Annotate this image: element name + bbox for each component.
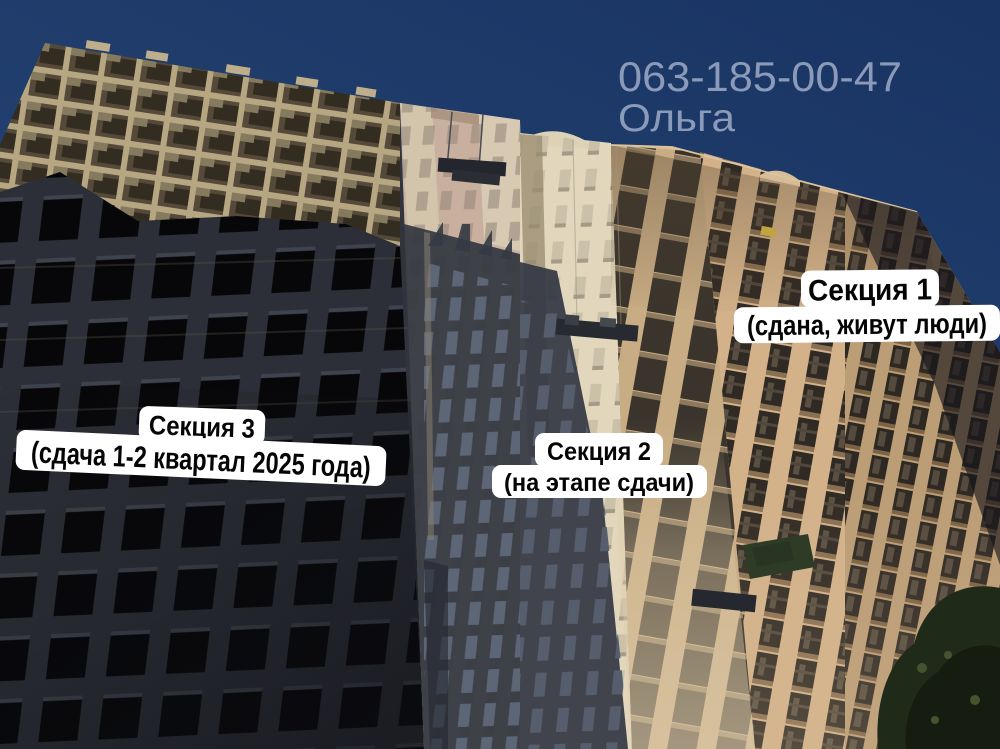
- svg-text:Секция 2: Секция 2: [547, 438, 651, 466]
- svg-text:(на этапе сдачи): (на этапе сдачи): [504, 469, 694, 497]
- svg-text:Секция 1: Секция 1: [808, 273, 932, 307]
- svg-text:Ольга: Ольга: [618, 97, 735, 140]
- svg-text:(сдана, живут люди): (сдана, живут люди): [747, 308, 987, 342]
- svg-text:063-185-00-47: 063-185-00-47: [618, 53, 902, 100]
